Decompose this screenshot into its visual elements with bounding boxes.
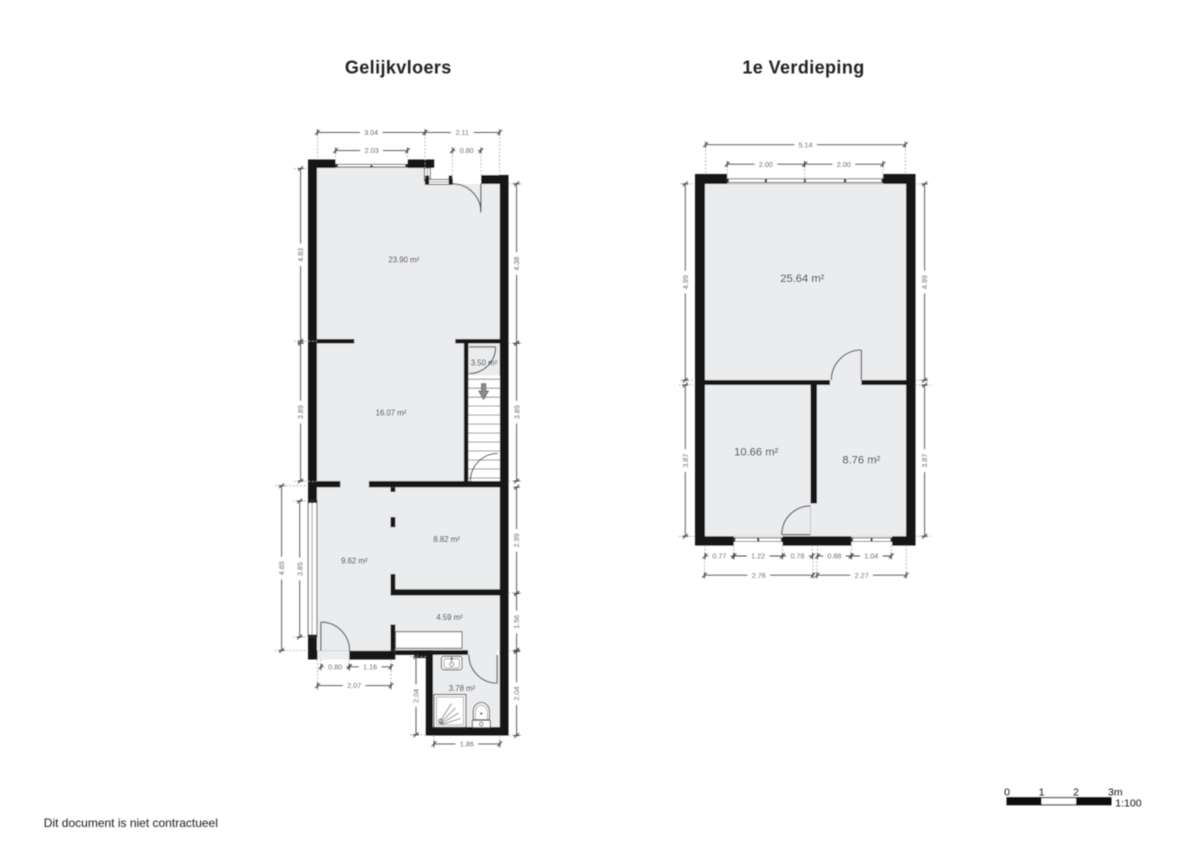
svg-text:2.07: 2.07 <box>347 681 361 690</box>
svg-text:3.87: 3.87 <box>681 454 690 468</box>
svg-text:1.56: 1.56 <box>512 615 521 629</box>
svg-text:0.88: 0.88 <box>827 552 841 561</box>
svg-text:0: 0 <box>1004 787 1010 799</box>
svg-text:25.64 m²: 25.64 m² <box>780 273 824 285</box>
svg-text:1.04: 1.04 <box>864 552 878 561</box>
svg-text:8.82 m²: 8.82 m² <box>433 535 460 544</box>
svg-text:4.83: 4.83 <box>296 248 305 262</box>
svg-text:Gelijkvloers: Gelijkvloers <box>345 58 452 78</box>
svg-text:9.62 m²: 9.62 m² <box>341 557 368 566</box>
svg-text:2.04: 2.04 <box>512 687 521 701</box>
svg-text:3.89: 3.89 <box>296 405 305 419</box>
svg-text:3.89: 3.89 <box>512 405 521 419</box>
svg-text:0.78: 0.78 <box>791 552 805 561</box>
svg-text:23.90 m²: 23.90 m² <box>388 255 419 264</box>
svg-text:1: 1 <box>1039 787 1045 799</box>
svg-text:16.07 m²: 16.07 m² <box>376 408 407 417</box>
svg-text:8.76 m²: 8.76 m² <box>842 455 880 467</box>
svg-text:4.59 m²: 4.59 m² <box>436 613 463 622</box>
svg-text:4.99: 4.99 <box>920 275 929 289</box>
svg-text:4.99: 4.99 <box>681 275 690 289</box>
svg-text:2.27: 2.27 <box>855 571 869 580</box>
svg-text:0.77: 0.77 <box>712 552 726 561</box>
svg-text:1.22: 1.22 <box>751 552 765 561</box>
svg-text:0.80: 0.80 <box>460 146 474 155</box>
svg-text:2.99: 2.99 <box>512 533 521 547</box>
svg-text:5.14: 5.14 <box>799 140 813 149</box>
svg-text:Dit document is niet contractu: Dit document is niet contractueel <box>44 816 218 830</box>
svg-text:2: 2 <box>1073 787 1079 799</box>
svg-text:3.85: 3.85 <box>295 562 304 576</box>
svg-text:3.87: 3.87 <box>920 454 929 468</box>
svg-text:1:100: 1:100 <box>1115 798 1141 810</box>
svg-text:1e Verdieping: 1e Verdieping <box>742 58 864 78</box>
svg-text:1.16: 1.16 <box>363 662 377 671</box>
svg-text:3.78 m²: 3.78 m² <box>449 684 476 693</box>
svg-text:2.03: 2.03 <box>365 146 379 155</box>
svg-text:3.50 m²: 3.50 m² <box>471 358 498 367</box>
svg-text:2.00: 2.00 <box>837 160 851 169</box>
svg-text:2.00: 2.00 <box>759 160 773 169</box>
svg-text:4.65: 4.65 <box>277 561 286 575</box>
svg-text:0.80: 0.80 <box>328 662 342 671</box>
svg-text:2.04: 2.04 <box>412 689 421 703</box>
svg-text:10.66 m²: 10.66 m² <box>734 447 778 459</box>
svg-text:4.38: 4.38 <box>512 257 521 271</box>
svg-text:2.76: 2.76 <box>752 571 766 580</box>
svg-text:1.86: 1.86 <box>460 740 474 749</box>
svg-text:3.04: 3.04 <box>364 128 378 137</box>
svg-text:2.11: 2.11 <box>456 128 469 137</box>
